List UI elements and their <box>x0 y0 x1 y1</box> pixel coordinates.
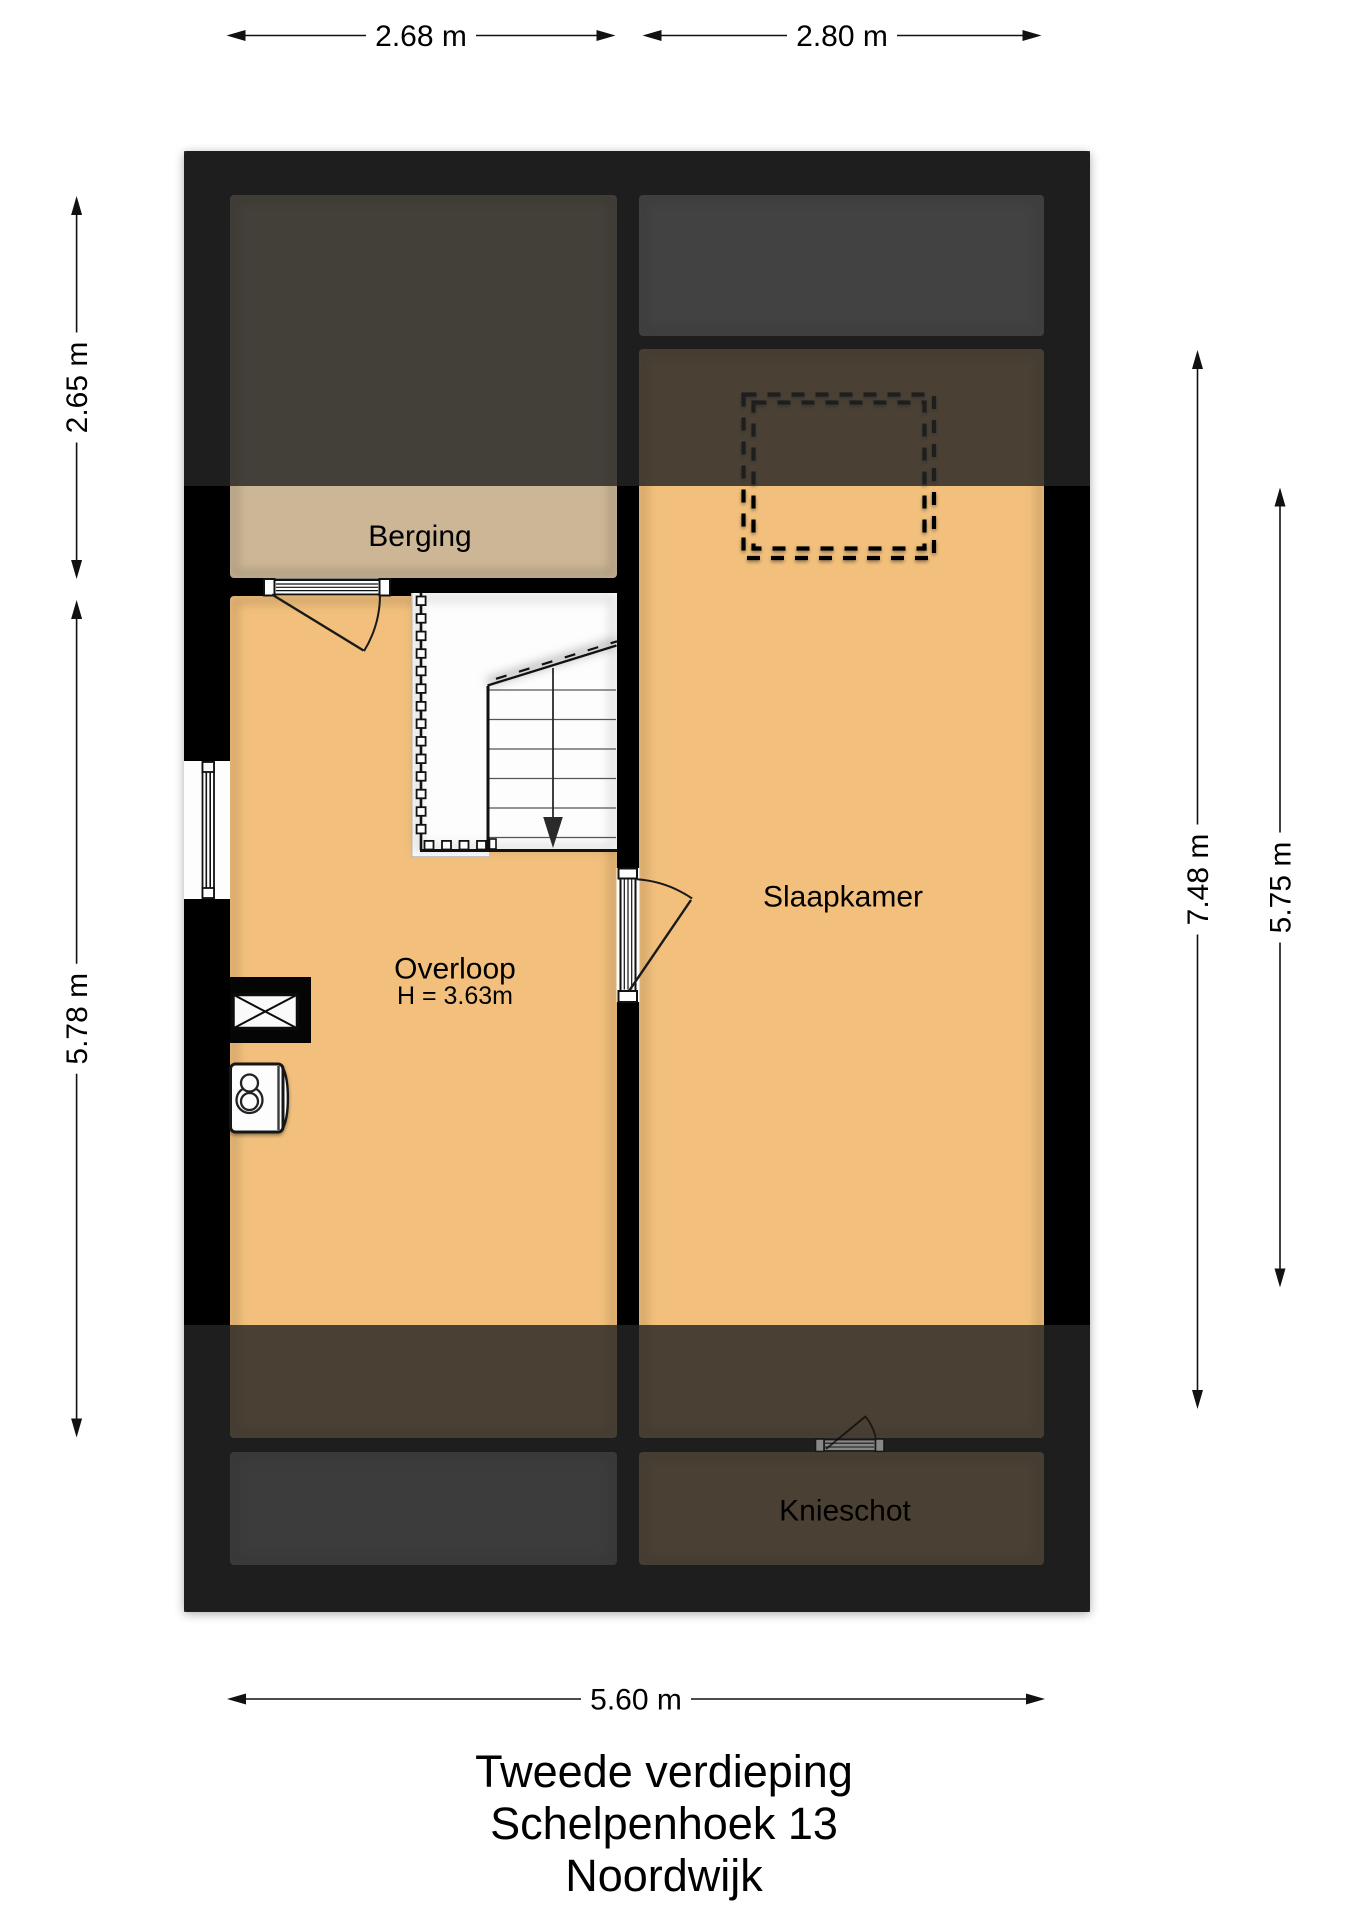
svg-text:Schelpenhoek 13: Schelpenhoek 13 <box>490 1798 838 1849</box>
svg-text:H = 3.63m: H = 3.63m <box>397 982 513 1010</box>
svg-text:Tweede verdieping: Tweede verdieping <box>475 1746 853 1797</box>
svg-text:2.68 m: 2.68 m <box>375 20 467 53</box>
svg-text:7.48 m: 7.48 m <box>1182 834 1215 926</box>
svg-text:Berging: Berging <box>368 520 471 553</box>
svg-text:5.78 m: 5.78 m <box>61 973 94 1065</box>
svg-text:Noordwijk: Noordwijk <box>565 1850 763 1901</box>
svg-text:5.75 m: 5.75 m <box>1265 842 1298 934</box>
svg-text:Overloop: Overloop <box>394 953 516 986</box>
svg-text:2.80 m: 2.80 m <box>796 20 888 53</box>
svg-text:2.65 m: 2.65 m <box>61 342 94 434</box>
svg-text:Slaapkamer: Slaapkamer <box>763 881 923 914</box>
svg-text:Knieschot: Knieschot <box>779 1495 911 1528</box>
svg-text:5.60 m: 5.60 m <box>590 1684 682 1717</box>
